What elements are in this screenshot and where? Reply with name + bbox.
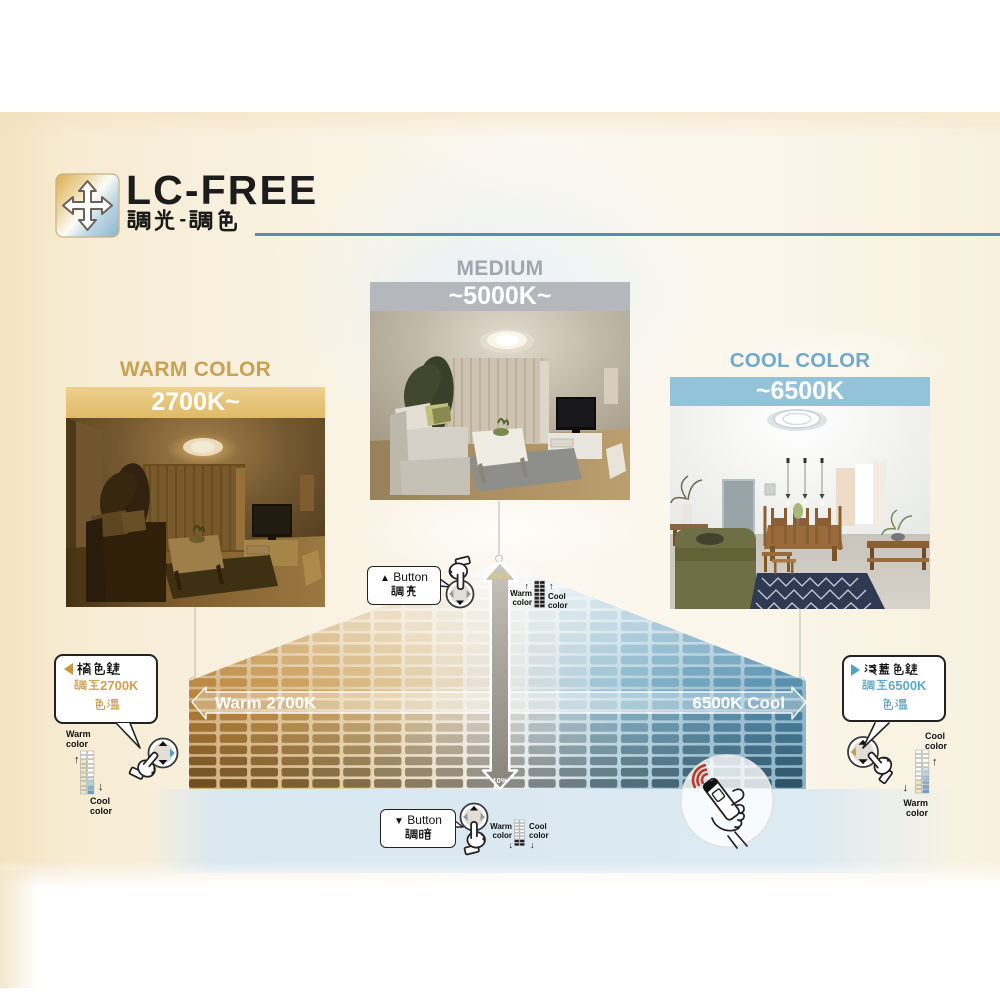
svg-text:color: color xyxy=(90,806,113,816)
svg-text:Warm 2700K: Warm 2700K xyxy=(215,694,317,713)
svg-text:↓: ↓ xyxy=(98,781,104,793)
svg-text:Warm: Warm xyxy=(903,798,928,808)
svg-text:Cool: Cool xyxy=(529,822,547,831)
svg-text:↑: ↑ xyxy=(525,581,530,591)
svg-text:color: color xyxy=(66,739,89,749)
svg-text:color: color xyxy=(529,831,549,840)
svg-text:Cool: Cool xyxy=(925,731,945,741)
svg-text:Warm: Warm xyxy=(66,729,91,739)
svg-text:color: color xyxy=(548,601,568,610)
svg-text:↑: ↑ xyxy=(549,581,554,591)
svg-text:color: color xyxy=(906,808,929,818)
svg-text:6500K Cool: 6500K Cool xyxy=(692,694,785,713)
svg-text:Warm: Warm xyxy=(490,822,512,831)
svg-text:color: color xyxy=(512,598,532,607)
svg-text:↓: ↓ xyxy=(903,782,909,794)
svg-text:color: color xyxy=(925,741,948,751)
svg-text:100%: 100% xyxy=(490,572,510,581)
svg-text:Cool: Cool xyxy=(90,796,110,806)
svg-text:color: color xyxy=(492,831,512,840)
svg-text:↓: ↓ xyxy=(530,840,535,850)
svg-text:↓: ↓ xyxy=(509,840,514,850)
svg-text:Cool: Cool xyxy=(548,592,566,601)
svg-text:10%: 10% xyxy=(492,776,507,785)
svg-text:↑: ↑ xyxy=(932,756,938,768)
svg-text:↑: ↑ xyxy=(74,754,80,766)
